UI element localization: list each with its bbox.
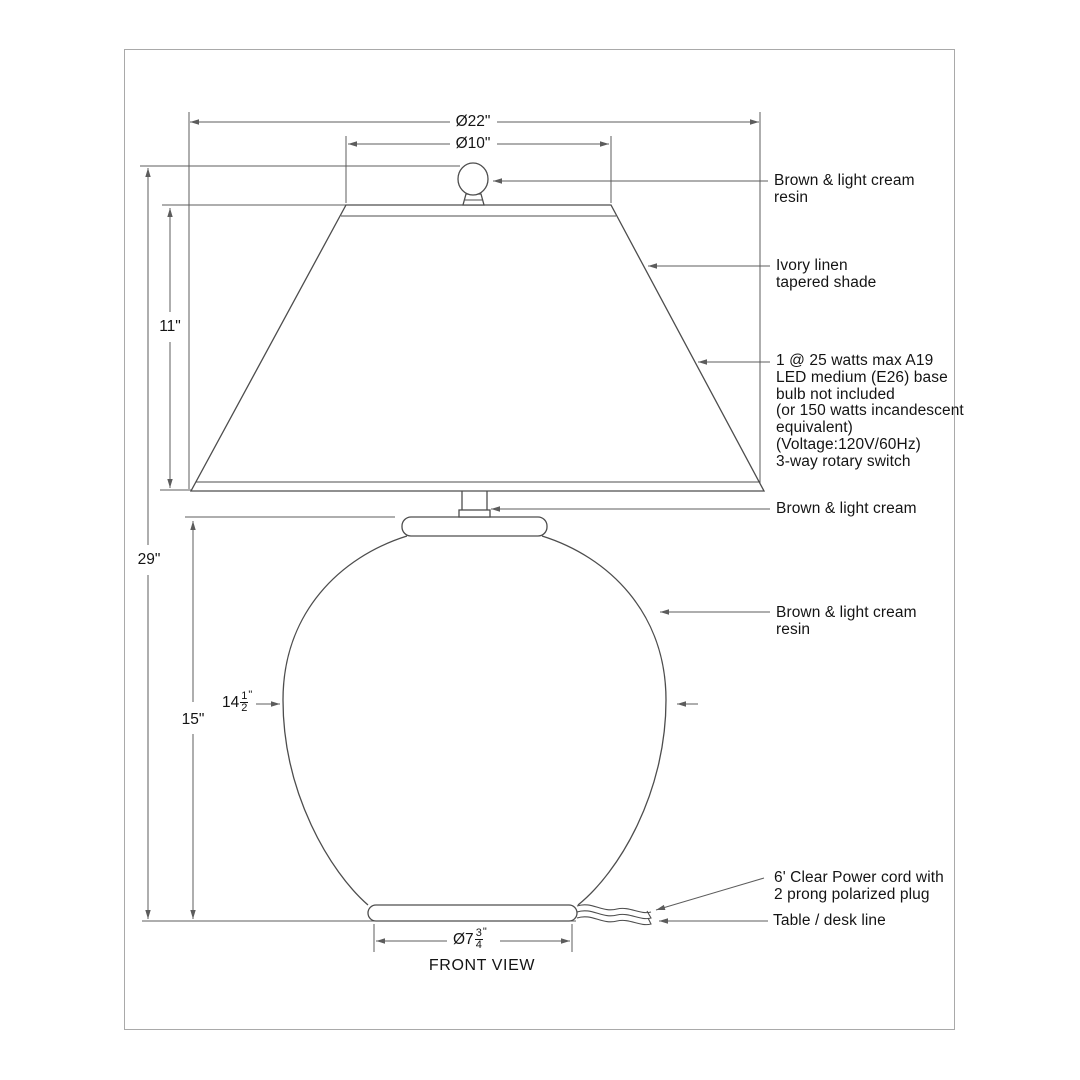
body-width-dim-text: 1412" [222, 691, 252, 714]
cord-leader [656, 878, 764, 910]
shade-height-dim-text: 11" [156, 318, 184, 336]
neck-material-label: Brown & light cream [776, 500, 917, 517]
lamp-outline [191, 163, 764, 925]
body-height-dim-text: 15" [179, 711, 208, 729]
shade-material-label: Ivory linen tapered shade [776, 257, 876, 291]
power-cord [577, 905, 651, 925]
shade-top-diameter-dim-text: Ø10" [453, 135, 494, 153]
lamp-technical-drawing [0, 0, 1080, 1080]
view-title: FRONT VIEW [429, 957, 535, 975]
finial-material-label: Brown & light cream resin [774, 172, 915, 206]
cord-label: 6' Clear Power cord with 2 prong polariz… [774, 869, 944, 903]
overall-height-dim-text: 29" [135, 551, 164, 569]
shade-outline [191, 205, 764, 491]
bulb-spec-label: 1 @ 25 watts max A19 LED medium (E26) ba… [776, 353, 964, 471]
body-material-label: Brown & light cream resin [776, 604, 917, 638]
drawing-canvas: Ø22" Ø10" 29" 11" 15" 1412" Ø734" Brown … [0, 0, 1080, 1080]
table-line-label: Table / desk line [773, 912, 886, 929]
body-left-profile [283, 536, 407, 905]
lamp-base [368, 905, 577, 921]
base-diameter-dim-text: Ø734" [453, 928, 487, 951]
body-right-profile [542, 536, 666, 905]
neck-flange [459, 510, 490, 517]
shade-diameter-dim-text: Ø22" [453, 113, 494, 131]
body-cap [402, 517, 547, 536]
finial-ball [458, 163, 488, 195]
